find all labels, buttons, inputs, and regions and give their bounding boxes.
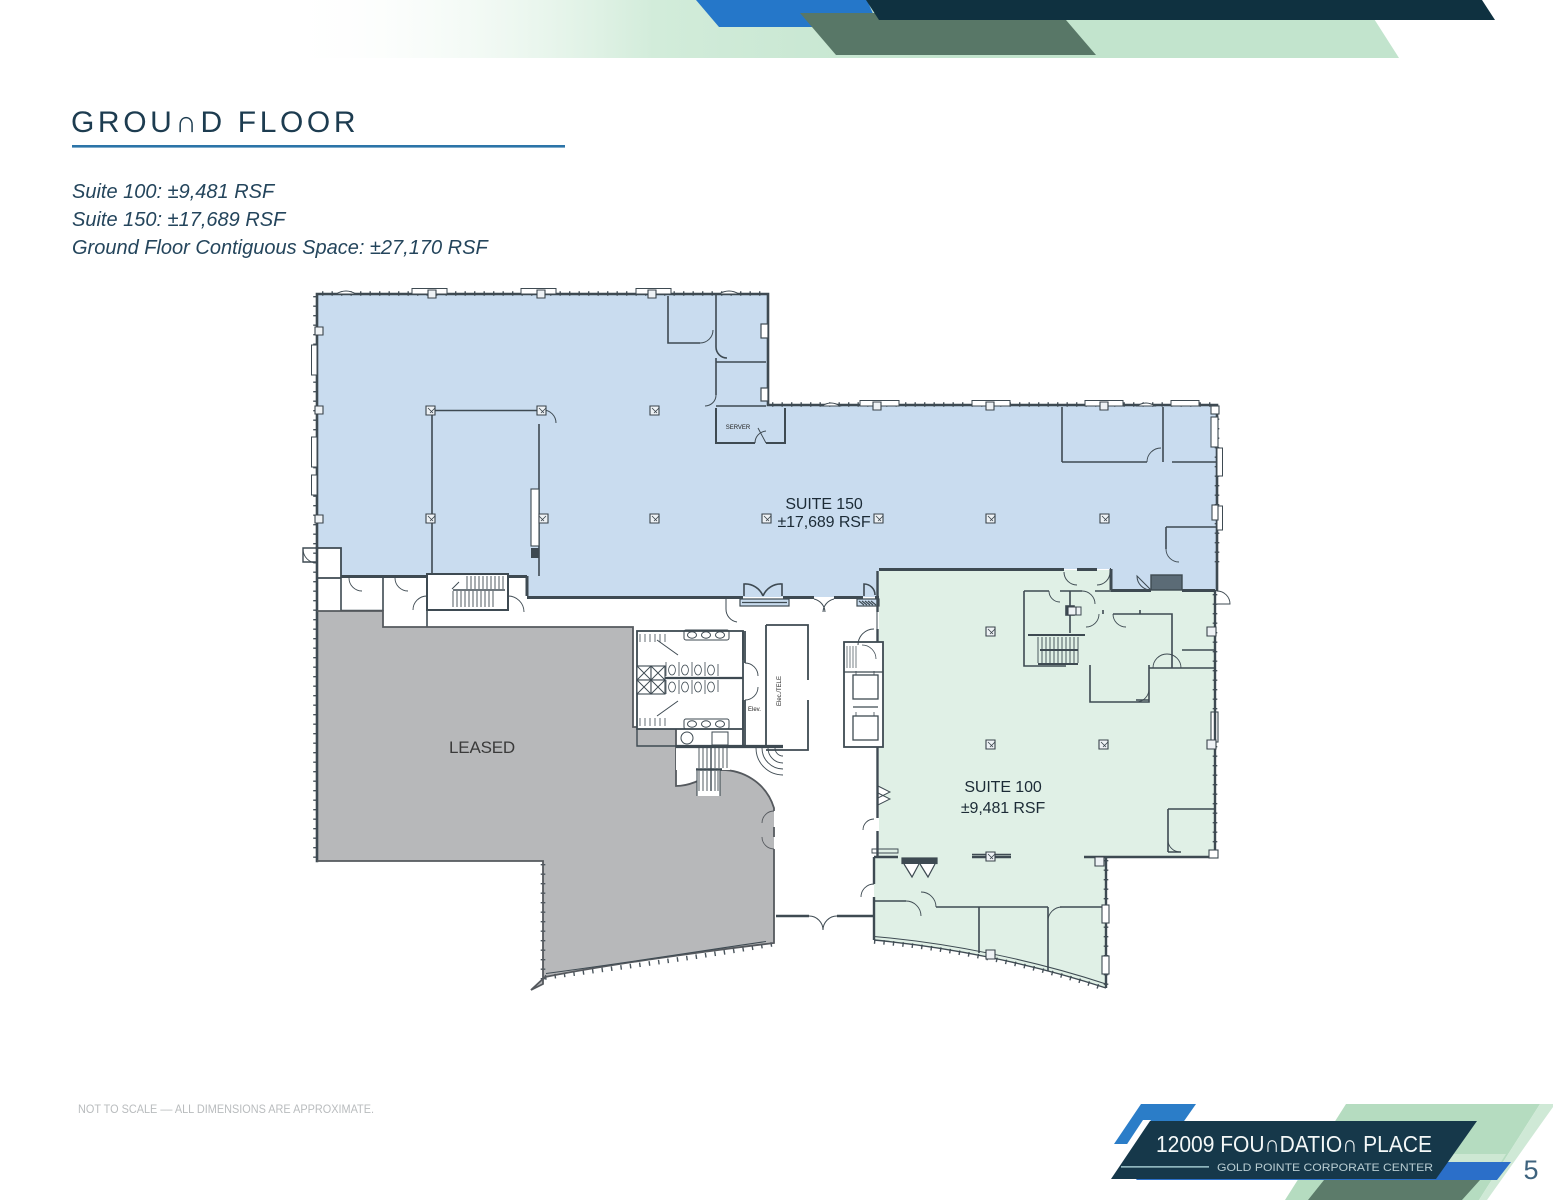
svg-text:Suite 100: ±9,481 RSF: Suite 100: ±9,481 RSF — [72, 181, 276, 203]
svg-text:SERVER: SERVER — [726, 425, 751, 431]
svg-text:LEASED: LEASED — [449, 738, 515, 757]
svg-text:±17,689 RSF: ±17,689 RSF — [777, 514, 870, 531]
svg-text:Ground Floor Contiguous Space:: Ground Floor Contiguous Space: ±27,170 R… — [72, 237, 489, 259]
svg-text:SUITE 100: SUITE 100 — [964, 779, 1042, 796]
svg-text:5: 5 — [1523, 1155, 1538, 1185]
svg-text:±9,481 RSF: ±9,481 RSF — [961, 800, 1046, 817]
svg-text:SUITE 150: SUITE 150 — [785, 496, 863, 513]
svg-text:Elec./TELE: Elec./TELE — [777, 676, 783, 706]
svg-text:Elev.: Elev. — [748, 707, 761, 713]
svg-text:12009 FOU∩DATIO∩ PLACE: 12009 FOU∩DATIO∩ PLACE — [1156, 1131, 1432, 1157]
svg-text:NOT TO SCALE –– ALL DIMENSIO: NOT TO SCALE –– ALL DIMENSIONS ARE APPRO… — [78, 1102, 374, 1116]
svg-text:Suite 150: ±17,689 RSF: Suite 150: ±17,689 RSF — [72, 209, 287, 231]
svg-text:GOLD POINTE CORPORATE CENTER: GOLD POINTE CORPORATE CENTER — [1217, 1162, 1433, 1174]
svg-text:GROU∩D FLOOR: GROU∩D FLOOR — [71, 106, 359, 139]
